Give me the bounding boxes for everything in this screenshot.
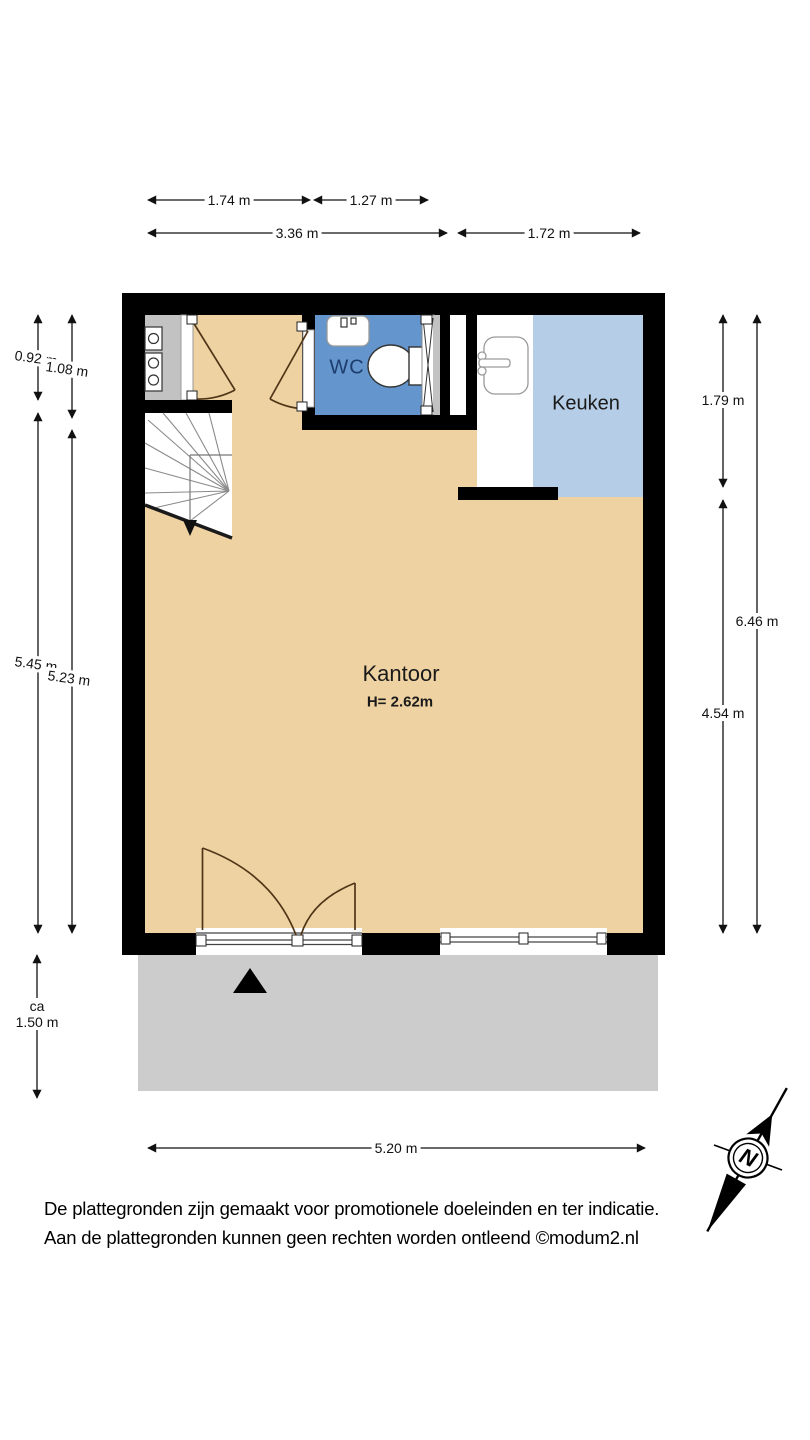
disclaimer: De plattegronden zijn gemaakt voor promo… <box>44 1194 659 1252</box>
dim-label-top-4: 1.72 m <box>525 225 574 241</box>
dim-label-top-3: 3.36 m <box>273 225 322 241</box>
dim-label-terrace-value: 1.50 m <box>16 1014 59 1030</box>
dim-label-top-2: 1.27 m <box>347 192 396 208</box>
wc-basin-icon <box>327 316 369 346</box>
dim-label-terrace-prefix: ca <box>16 998 59 1014</box>
window <box>440 928 607 955</box>
floor-plan-page: WC Keuken Kantoor H= 2.62m 1.74 m 1.27 m… <box>0 0 810 1440</box>
disclaimer-line-1: De plattegronden zijn gemaakt voor promo… <box>44 1194 659 1223</box>
dim-label-top-1: 1.74 m <box>205 192 254 208</box>
room-label-keuken: Keuken <box>552 393 620 416</box>
dim-label-bottom: 5.20 m <box>372 1140 421 1156</box>
room-label-kantoor: Kantoor <box>362 661 439 687</box>
ceiling-height-label: H= 2.62m <box>367 694 433 711</box>
terrace <box>138 955 658 1091</box>
kitchen-sink-icon <box>478 337 528 394</box>
dim-label-right-3: 4.54 m <box>699 705 748 721</box>
room-label-wc: WC <box>329 357 364 380</box>
toilet-icon <box>368 345 426 387</box>
dim-label-right-1: 1.79 m <box>699 392 748 408</box>
dim-label-right-2: 6.46 m <box>733 613 782 629</box>
disclaimer-line-2: Aan de plattegronden kunnen geen rechten… <box>44 1223 659 1252</box>
dim-label-terrace: ca 1.50 m <box>14 998 61 1030</box>
